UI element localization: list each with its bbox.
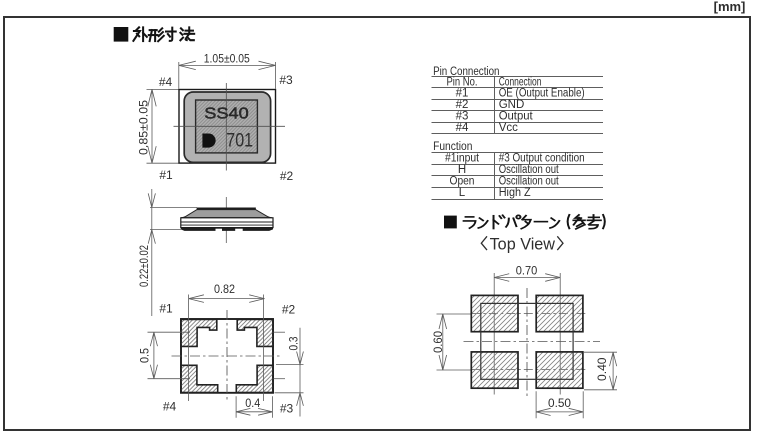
svg-text:Oscillation out: Oscillation out xyxy=(499,176,560,188)
svg-text:0.82: 0.82 xyxy=(214,284,235,296)
svg-text:0.3: 0.3 xyxy=(289,337,301,351)
svg-text:701: 701 xyxy=(226,131,253,152)
svg-text:High Z: High Z xyxy=(499,187,531,199)
svg-text:#2: #2 xyxy=(282,303,296,317)
svg-text:#1input: #1input xyxy=(445,153,480,165)
svg-text:0.5: 0.5 xyxy=(140,348,152,363)
svg-text:#1: #1 xyxy=(159,302,173,316)
svg-text:#2: #2 xyxy=(280,169,294,183)
svg-text:0.70: 0.70 xyxy=(516,266,538,278)
svg-text:0.50: 0.50 xyxy=(548,398,571,410)
svg-text:Function: Function xyxy=(433,141,472,153)
svg-text:OE (Output Enable): OE (Output Enable) xyxy=(499,88,585,100)
svg-text:#3 Output condition: #3 Output condition xyxy=(499,153,585,165)
svg-text:#1: #1 xyxy=(456,88,469,100)
svg-text:SS40: SS40 xyxy=(204,106,249,123)
svg-text:Open: Open xyxy=(450,176,475,188)
svg-text:Output: Output xyxy=(499,111,534,123)
svg-text:0.85±0.05: 0.85±0.05 xyxy=(139,100,151,155)
svg-text:Oscillation out: Oscillation out xyxy=(499,164,560,176)
svg-text:#4: #4 xyxy=(456,122,469,134)
svg-text:0.22±0.02: 0.22±0.02 xyxy=(139,245,151,287)
svg-text:L: L xyxy=(459,187,466,199)
svg-text:#2: #2 xyxy=(456,99,469,111)
svg-text:#1: #1 xyxy=(159,168,173,182)
svg-text:0.60: 0.60 xyxy=(433,331,445,353)
svg-text:0.4: 0.4 xyxy=(245,398,261,410)
svg-text:H: H xyxy=(458,164,466,176)
svg-text:Top View: Top View xyxy=(490,234,556,253)
svg-text:Vcc: Vcc xyxy=(499,122,518,134)
svg-text:#3: #3 xyxy=(280,402,294,416)
svg-text:#4: #4 xyxy=(159,75,173,89)
svg-text:#3: #3 xyxy=(279,73,293,87)
svg-text:0.40: 0.40 xyxy=(597,358,609,382)
svg-text:#3: #3 xyxy=(456,111,469,123)
svg-text:[mm]: [mm] xyxy=(714,0,746,14)
svg-text:Connection: Connection xyxy=(499,76,542,88)
svg-text:1.05±0.05: 1.05±0.05 xyxy=(204,53,250,65)
svg-text:Pin No.: Pin No. xyxy=(447,76,478,88)
svg-text:GND: GND xyxy=(499,99,525,111)
svg-text:#4: #4 xyxy=(163,400,177,414)
